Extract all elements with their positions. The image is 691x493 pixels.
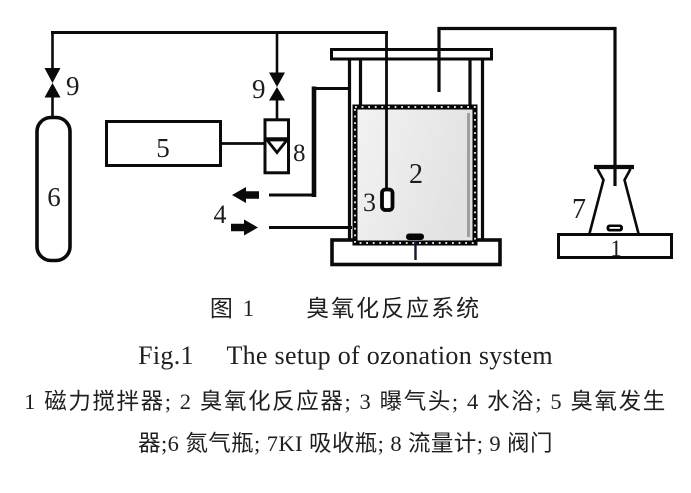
valve-left-upper-triangle [45, 68, 61, 83]
label-nitrogen-cylinder: 6 [47, 182, 61, 212]
water-out-arrow-icon [232, 187, 259, 203]
valve-left-lower-triangle [45, 83, 61, 98]
valve-right-upper-triangle [269, 73, 285, 88]
flask-right-side [625, 169, 639, 234]
label-stirrer-right: 1 [610, 236, 622, 261]
figure-legend-line-1: 1 磁力搅拌器; 2 臭氧化反应器; 3 曝气头; 4 水浴; 5 臭氧发生 [0, 384, 691, 416]
flow-meter [265, 120, 289, 173]
valve-right [269, 73, 285, 101]
label-flow-meter: 8 [293, 140, 306, 167]
figure-caption-english: Fig.1 The setup of ozonation system [0, 335, 691, 372]
valve-left [45, 68, 61, 98]
valve-right-lower-triangle [269, 87, 285, 101]
label-ki-flask: 7 [572, 194, 586, 225]
aerator-head [382, 190, 393, 211]
water-in-arrow-icon [231, 220, 258, 236]
schematic-diagram: 9 6 5 9 8 4 2 3 7 1 [0, 0, 691, 285]
label-valve-left: 9 [66, 71, 80, 101]
label-aerator: 3 [363, 188, 376, 217]
figure-ozonation-system: 9 6 5 9 8 4 2 3 7 1 图 1 臭氧化反应系统 Fig.1 Th… [0, 0, 691, 493]
frame-top-plate [332, 50, 492, 60]
label-ozone-generator: 5 [156, 133, 170, 163]
label-reactor: 2 [409, 159, 423, 190]
stir-bar-reactor [406, 234, 424, 241]
water-bath-piping [231, 87, 352, 236]
figure-caption-chinese: 图 1 臭氧化反应系统 [0, 289, 691, 323]
stir-bar-flask-highlight [610, 227, 621, 229]
label-valve-right: 9 [252, 74, 266, 104]
label-water-bath: 4 [214, 200, 227, 229]
flask-left-side [590, 169, 604, 234]
figure-legend-line-2: 器;6 氮气瓶; 7KI 吸收瓶; 8 流量计; 9 阀门 [0, 426, 691, 458]
